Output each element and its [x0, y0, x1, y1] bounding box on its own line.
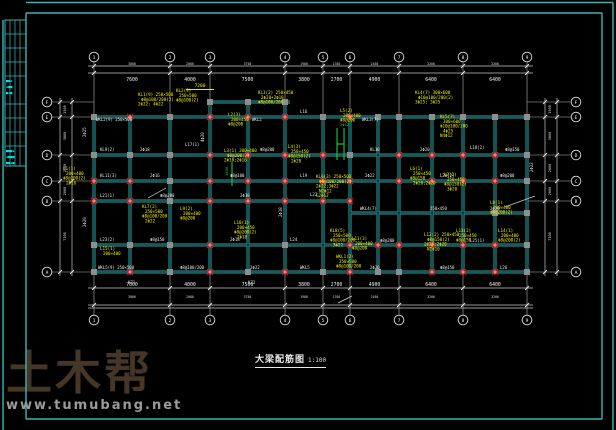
- white-annotation: Φ8@150: [150, 237, 165, 242]
- grid-bubble: 5: [318, 52, 328, 62]
- grid-bubble: D: [42, 150, 52, 160]
- column-marker: [492, 114, 498, 120]
- red-node-marker: [282, 198, 288, 204]
- grid-bubble-label: C: [46, 179, 49, 185]
- dim-value: 3200: [427, 62, 435, 66]
- white-annotation: L25(1): [470, 238, 484, 243]
- white-annotation: L19: [300, 173, 308, 178]
- grid-bubble-label: 7: [398, 55, 401, 61]
- white-annotation: Φ8@200: [380, 238, 395, 243]
- dim-value: 3800: [298, 77, 310, 83]
- white-annotation: Φ8@150: [505, 147, 520, 152]
- red-node-marker: [207, 198, 213, 204]
- grid-bubble: A: [42, 267, 52, 277]
- red-node-marker: [207, 178, 213, 184]
- drawing-title-scale: 1:100: [308, 357, 326, 364]
- grid-bubble: 2: [165, 315, 175, 325]
- column-marker: [167, 269, 173, 275]
- grid-bubble-label: B: [575, 199, 578, 205]
- white-annotation: 2Φ18: [230, 237, 240, 242]
- grid-bubble-label: 9: [526, 318, 529, 324]
- grid-bubble: F: [42, 97, 52, 107]
- white-annotation: L21(1): [100, 193, 114, 198]
- white-annotation: 2Φ16: [150, 173, 160, 178]
- grid-bubble-label: E: [575, 115, 578, 121]
- column-marker: [167, 178, 173, 184]
- dim-value: 2450: [371, 62, 379, 66]
- white-annotation: 2Φ22: [365, 173, 375, 178]
- white-annotation: Φ8@100/200: [180, 265, 205, 270]
- red-node-marker: [127, 178, 133, 184]
- grid-bubble-label: 5: [322, 55, 325, 61]
- white-annotation: 2Φ20: [82, 217, 87, 227]
- red-node-marker: [460, 269, 466, 275]
- dim-value: 3200: [427, 295, 435, 299]
- leader-line: [505, 196, 535, 207]
- grid-bubble: 1: [89, 52, 99, 62]
- white-annotation: WKL5: [300, 265, 310, 270]
- dim-value: 3750: [244, 62, 252, 66]
- yellow-annotation: L12(2) 250×450Φ8@150(2)2Φ20;2Φ20N2Φ10: [424, 232, 460, 251]
- white-annotation: 2Φ20: [370, 265, 380, 270]
- white-annotation: KL11(3): [100, 173, 117, 178]
- column-marker: [207, 99, 213, 105]
- white-annotation: KL10: [370, 147, 380, 152]
- grid-bubble: 2: [165, 52, 175, 62]
- yellow-annotation: L11(3)200×400Φ8@200: [352, 236, 373, 251]
- grid-bubble: D: [571, 150, 581, 160]
- red-node-marker: [91, 198, 97, 204]
- red-node-marker: [207, 242, 213, 248]
- column-marker: [127, 242, 133, 248]
- dim-value: 7100: [63, 232, 67, 241]
- dim-value: 6400: [425, 282, 437, 288]
- white-annotation: 2Φ22: [250, 265, 260, 270]
- dim-value: 3800: [298, 282, 310, 288]
- dim-value: 6400: [489, 282, 501, 288]
- dim-value: 2450: [371, 295, 379, 299]
- dim-value: 1350: [333, 62, 341, 66]
- title-strip-text: ■■▪■: [6, 161, 15, 165]
- red-node-marker: [207, 269, 213, 275]
- grid-bubble: C: [571, 176, 581, 186]
- red-node-marker: [492, 152, 498, 158]
- grid-bubble-label: 2: [169, 318, 172, 324]
- white-annotation: KZ2: [248, 280, 256, 285]
- column-marker: [320, 269, 326, 275]
- white-annotation: L22: [310, 192, 318, 197]
- white-annotation: WKL4(7): [360, 206, 377, 211]
- grid-bubble: E: [571, 112, 581, 122]
- column-marker: [524, 210, 530, 216]
- grid-bubble-label: 7: [398, 318, 401, 324]
- white-annotation: L24: [290, 237, 298, 242]
- grid-bubble-label: 6: [349, 55, 352, 61]
- white-annotation: 2Φ18: [278, 207, 283, 217]
- red-node-marker: [127, 198, 133, 204]
- dim-value: 4900: [369, 77, 381, 83]
- white-annotation: L23(2): [100, 237, 114, 242]
- green-annotation: 1800: [224, 166, 229, 176]
- grid-bubble-label: 4: [284, 318, 287, 324]
- white-annotation: L16: [300, 109, 308, 114]
- white-annotation: WKL5(9) 250×500: [98, 265, 135, 270]
- yellow-annotation: L9(2)200×400Φ8@200: [180, 206, 201, 221]
- grid-bubble: B: [42, 196, 52, 206]
- dim-value: 2000: [63, 187, 67, 196]
- column-marker: [524, 152, 530, 158]
- column-marker: [167, 152, 173, 158]
- grid-bubble: 3: [205, 315, 215, 325]
- dim-value: 4000: [184, 282, 196, 288]
- grid-bubble-label: F: [575, 100, 578, 106]
- grid-bubble: 8: [458, 52, 468, 62]
- grid-bubble: 6: [345, 315, 355, 325]
- column-marker: [91, 242, 97, 248]
- cad-sheet[interactable]: 土木帮 www.tumubang.net 3800760020004000375…: [0, 0, 616, 430]
- grid-bubble-label: F: [46, 100, 49, 106]
- grid-bubble-label: C: [575, 179, 578, 185]
- white-annotation: KL9(2): [100, 147, 114, 152]
- column-marker: [320, 114, 326, 120]
- yellow-annotation: KL6(3) 250×500Φ8@100/200(2)2Φ22;3Φ22N2Φ1…: [316, 174, 352, 198]
- grid-bubble-label: 8: [462, 318, 465, 324]
- dim-value-highlight: 7200: [195, 83, 206, 89]
- column-marker: [167, 114, 173, 120]
- dim-value: 7600: [126, 77, 138, 83]
- dim-value: 2000: [548, 187, 552, 196]
- dim-value: 3800: [548, 132, 552, 141]
- column-marker: [524, 242, 530, 248]
- dim-value: 6400: [489, 77, 501, 83]
- white-annotation: L26: [500, 265, 508, 270]
- dim-value: 2700: [331, 77, 343, 83]
- yellow-annotation: WKL1(2)250×500Φ8@100/200: [336, 254, 362, 269]
- column-marker: [396, 114, 402, 120]
- yellow-annotation: L1(1)200×400Φ8@200(2)2Φ16: [63, 166, 86, 185]
- title-strip-text: ■■▪: [6, 79, 12, 83]
- dim-value: 2000: [186, 62, 194, 66]
- dim-value: 3200: [491, 62, 499, 66]
- red-node-marker: [396, 242, 402, 248]
- grid-bubble: F: [571, 97, 581, 107]
- grid-bubble: C: [42, 176, 52, 186]
- grid-bubble-label: 6: [349, 318, 352, 324]
- red-node-marker: [460, 152, 466, 158]
- white-annotation: 2Φ20: [490, 206, 500, 211]
- grid-bubble: 5: [318, 315, 328, 325]
- red-node-marker: [320, 152, 326, 158]
- dim-value: 3800: [63, 132, 67, 141]
- grid-bubble-label: 3: [209, 55, 212, 61]
- white-annotation: 2Φ18: [140, 147, 150, 152]
- red-node-marker: [320, 198, 326, 204]
- grid-bubble: 7: [394, 52, 404, 62]
- grid-bubble: 7: [394, 315, 404, 325]
- dim-value: 4900: [369, 282, 381, 288]
- column-marker: [127, 152, 133, 158]
- white-annotation: WKL2: [252, 117, 262, 122]
- yellow-annotation: L5(2)200×400Φ8@200: [340, 108, 361, 123]
- grid-bubble: 4: [280, 52, 290, 62]
- grid-bubble: 9: [522, 52, 532, 62]
- dim-value: 7100: [548, 232, 552, 241]
- red-node-marker: [429, 152, 435, 158]
- grid-bubble: 9: [522, 315, 532, 325]
- white-annotation: WKL3(7): [362, 117, 379, 122]
- white-annotation: 2Φ25: [82, 127, 87, 137]
- column-marker: [524, 114, 530, 120]
- dim-value: 1350: [333, 295, 341, 299]
- column-marker: [245, 99, 251, 105]
- grid-bubble: 8: [458, 315, 468, 325]
- grid-bubble-label: B: [46, 199, 49, 205]
- red-node-marker: [245, 178, 251, 184]
- dim-value: 6400: [425, 77, 437, 83]
- grid-bubble-label: A: [575, 270, 578, 276]
- column-marker: [167, 198, 173, 204]
- red-node-marker: [492, 178, 498, 184]
- white-annotation: 2Φ22: [529, 162, 534, 172]
- red-node-marker: [492, 269, 498, 275]
- dim-value: 1500: [548, 105, 552, 114]
- column-marker: [91, 269, 97, 275]
- red-node-marker: [282, 178, 288, 184]
- yellow-annotation: L14(1)200×400Φ8@200(2): [498, 228, 521, 243]
- dim-value: 1500: [63, 105, 67, 114]
- grid-bubble-label: 5: [322, 318, 325, 324]
- red-node-marker: [396, 152, 402, 158]
- title-strip-text: ■■■▪: [6, 149, 14, 153]
- grid-bubble-label: 2: [169, 55, 172, 61]
- column-marker: [347, 152, 353, 158]
- column-marker: [429, 114, 435, 120]
- grid-bubble-label: E: [46, 115, 49, 121]
- column-marker: [91, 152, 97, 158]
- grid-bubble: B: [571, 196, 581, 206]
- dim-value: 2600: [548, 164, 552, 173]
- red-node-marker: [207, 114, 213, 120]
- grid-bubble-label: 8: [462, 55, 465, 61]
- dim-value: 3750: [244, 295, 252, 299]
- red-node-marker: [347, 198, 353, 204]
- dim-value: 7500: [242, 77, 254, 83]
- red-node-marker: [282, 114, 288, 120]
- yellow-annotation: L4(3)250×450Φ8@150(2)2Φ20: [288, 144, 311, 163]
- white-annotation: WKL2(9) 250×500: [96, 117, 133, 122]
- yellow-annotation: L15(1)200×400: [100, 246, 121, 256]
- dim-value: 4000: [184, 77, 196, 83]
- grid-bubble: 3: [205, 52, 215, 62]
- dim-value: 3800: [128, 62, 136, 66]
- white-annotation: Φ8@200: [500, 173, 515, 178]
- white-annotation: Φ8@200: [260, 147, 275, 152]
- grid-bubble-label: D: [46, 153, 49, 159]
- red-node-marker: [396, 178, 402, 184]
- grid-bubble: 6: [345, 52, 355, 62]
- yellow-annotation: KL2(9)250×500Φ8@100(2): [176, 88, 199, 103]
- title-strip-text: ■▪■: [6, 91, 13, 95]
- column-marker: [460, 114, 466, 120]
- white-annotation: KZ1: [128, 280, 136, 285]
- white-annotation: 2Φ18: [240, 193, 250, 198]
- white-annotation: 250×450: [430, 206, 447, 211]
- dim-value: 3800: [128, 295, 136, 299]
- drawing-title-text: 大梁配筋图: [255, 355, 305, 365]
- drawing-title: 大梁配筋图1:100: [255, 347, 326, 368]
- red-node-marker: [460, 242, 466, 248]
- dim-value: 2700: [331, 282, 343, 288]
- red-node-marker: [245, 198, 251, 204]
- red-node-marker: [207, 152, 213, 158]
- grid-bubble: A: [571, 267, 581, 277]
- white-annotation: Φ8@150: [440, 265, 455, 270]
- yellow-annotation: KL1(9) 250×500Φ8@100/200(2)2Φ22; 4Φ22: [138, 92, 174, 107]
- grid-bubble-label: 3: [209, 318, 212, 324]
- white-annotation: Φ8@100: [230, 173, 245, 178]
- grid-bubble-label: 1: [93, 318, 96, 324]
- red-node-marker: [347, 269, 353, 275]
- green-annotation: 2Φ12: [340, 122, 349, 127]
- grid-bubble-label: 4: [284, 55, 287, 61]
- dim-value: 1900: [300, 62, 308, 66]
- grid-bubble: E: [42, 112, 52, 122]
- title-strip-text: ▪■■■: [6, 155, 15, 159]
- yellow-annotation: KL7(2)250×500Φ8@100/2002Φ22: [142, 204, 168, 223]
- grid-bubble: 1: [89, 315, 99, 325]
- column-marker: [524, 178, 530, 184]
- white-annotation: Φ8@200: [160, 193, 175, 198]
- red-node-marker: [492, 242, 498, 248]
- column-marker: [282, 242, 288, 248]
- grid-bubble: 4: [280, 315, 290, 325]
- grid-bubble-label: 1: [93, 55, 96, 61]
- white-annotation: 2Φ20: [420, 147, 430, 152]
- white-annotation: L20(2): [440, 173, 454, 178]
- column-marker: [167, 242, 173, 248]
- dim-value: 2000: [186, 295, 194, 299]
- dim-value: 3200: [491, 295, 499, 299]
- white-annotation: 4Φ20: [200, 132, 205, 142]
- column-marker: [396, 269, 402, 275]
- yellow-annotation: KL4(7) 300×600Φ10@100/200(2)3Φ25; 3Φ25: [415, 90, 453, 105]
- grid-bubble-label: D: [575, 153, 578, 159]
- grid-bubble-label: A: [46, 270, 49, 276]
- red-node-marker: [429, 269, 435, 275]
- red-node-marker: [282, 269, 288, 275]
- grid-bubble-label: 9: [526, 55, 529, 61]
- dim-value: 1900: [300, 295, 308, 299]
- white-annotation: L18(2): [470, 145, 484, 150]
- red-node-marker: [91, 178, 97, 184]
- white-annotation: L17(1): [185, 142, 199, 147]
- title-strip-text: ▪■■: [6, 85, 13, 89]
- column-marker: [524, 269, 530, 275]
